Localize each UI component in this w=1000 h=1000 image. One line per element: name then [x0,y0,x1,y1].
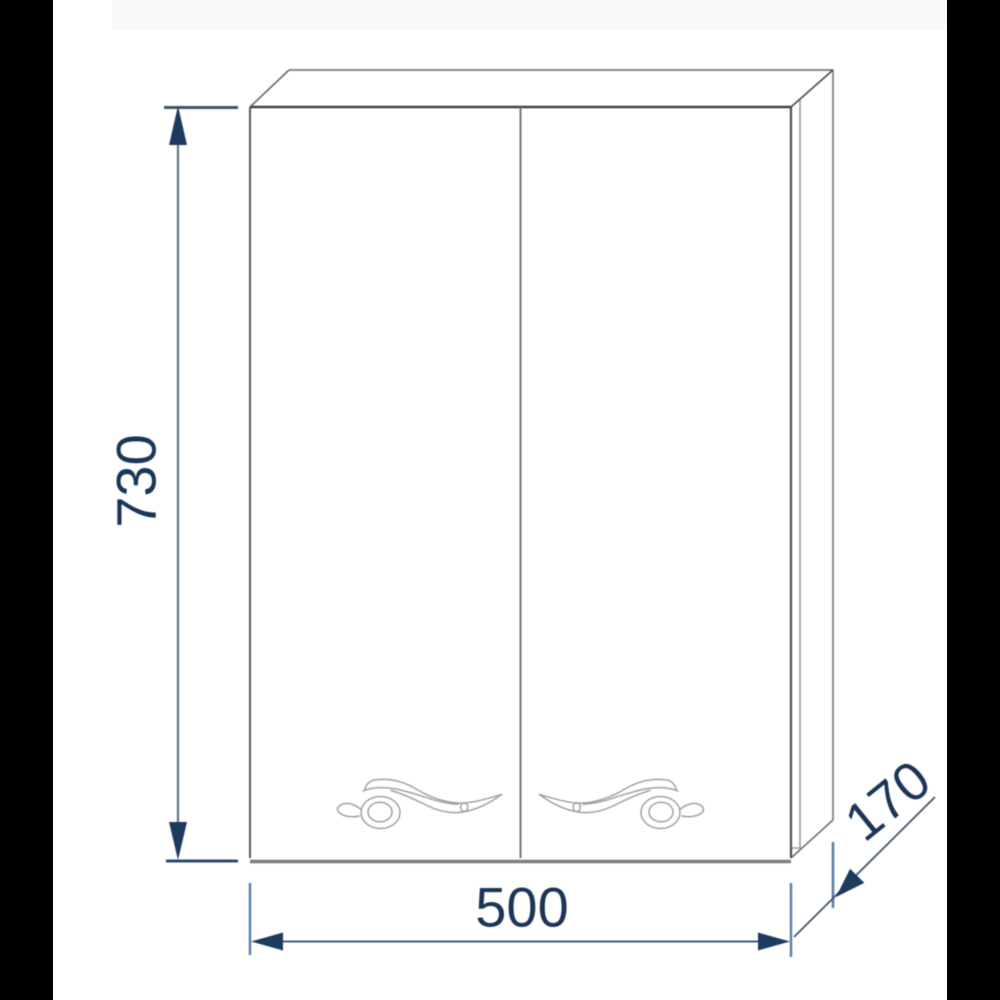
svg-text:170: 170 [834,749,942,852]
svg-text:730: 730 [105,434,168,527]
svg-text:500: 500 [475,876,568,939]
